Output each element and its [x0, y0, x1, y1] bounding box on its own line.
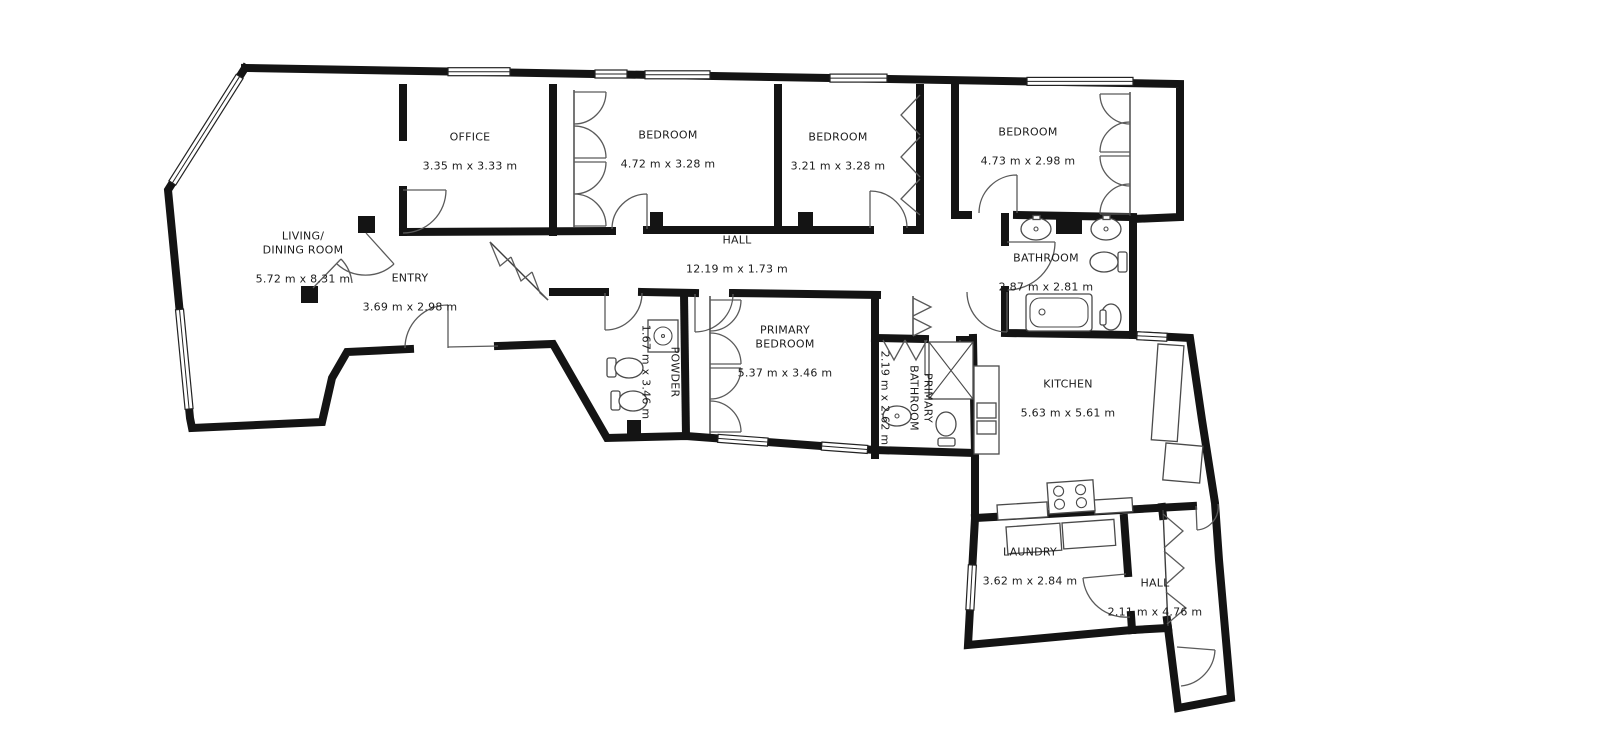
door-arc-living-a: [337, 233, 394, 275]
window: [595, 70, 627, 78]
door-frame-block: [650, 212, 663, 226]
kitchen-counter: [997, 502, 1048, 520]
kitchen-counter: [1094, 498, 1133, 514]
kitchen-fixtures: [974, 344, 1203, 520]
door-arc-office: [403, 190, 446, 233]
column: [358, 216, 375, 233]
floor-plan-drawing: [0, 0, 1600, 744]
door-arc-front-entry: [405, 305, 498, 348]
closet-bifold-vestibule: [913, 298, 931, 336]
shower-icon: [929, 342, 973, 399]
door-arc-laundry: [1083, 574, 1130, 617]
closet-bifold-rear-hall: [1163, 514, 1186, 624]
window: [176, 309, 194, 409]
window: [1137, 332, 1167, 342]
columns: [301, 212, 1082, 437]
window: [448, 68, 510, 76]
washer-icon: [1006, 523, 1062, 554]
closet-arcs-bedroom-3: [1100, 94, 1130, 214]
door-arc-rear-hall: [1177, 647, 1215, 686]
floor-plan-page: LIVING/ DINING ROOM 5.72 m x 8.31 m OFFI…: [0, 0, 1600, 744]
toilet-icon: [936, 412, 956, 446]
bidet-icon: [1100, 304, 1121, 330]
door-arc-bedroom-2: [870, 191, 907, 228]
toilet-icon: [1090, 252, 1127, 272]
window: [966, 565, 976, 610]
refrigerator-icon: [1163, 443, 1203, 483]
door-arc-powder: [605, 293, 642, 330]
closet-arcs-primary-bedroom: [710, 300, 741, 432]
sink-icon: [883, 406, 911, 426]
primary-bathroom-fixtures: [883, 342, 973, 446]
powder-fixtures: [607, 320, 678, 411]
closet-bifold-primary-bathroom: [883, 340, 927, 360]
window: [1027, 77, 1133, 85]
door-arc-bedroom-3: [979, 175, 1017, 213]
bathtub-icon: [1026, 294, 1092, 331]
toilet-icon: [607, 358, 643, 378]
kitchen-counter: [1151, 344, 1184, 442]
column: [301, 286, 318, 303]
door-arc-bathroom: [1007, 242, 1055, 290]
door-frame-block: [798, 212, 813, 227]
door-arc-living-b: [313, 259, 352, 288]
doors: [313, 175, 1218, 686]
sink-icon: [648, 320, 678, 352]
kitchen-sink-icon: [977, 403, 996, 434]
laundry-fixtures: [1006, 519, 1116, 554]
toilet-icon: [611, 391, 647, 411]
closet-arcs-bedroom-1: [574, 92, 606, 226]
window: [645, 71, 710, 79]
dryer-icon: [1062, 519, 1116, 549]
fixtures: [607, 216, 1203, 554]
wall-pier: [1056, 214, 1082, 234]
window: [830, 74, 887, 82]
stove-icon: [1047, 480, 1095, 514]
door-arc-bedroom-1: [612, 194, 647, 229]
wall-notch: [627, 420, 641, 437]
exterior-walls: [168, 68, 1231, 708]
window: [169, 74, 243, 185]
